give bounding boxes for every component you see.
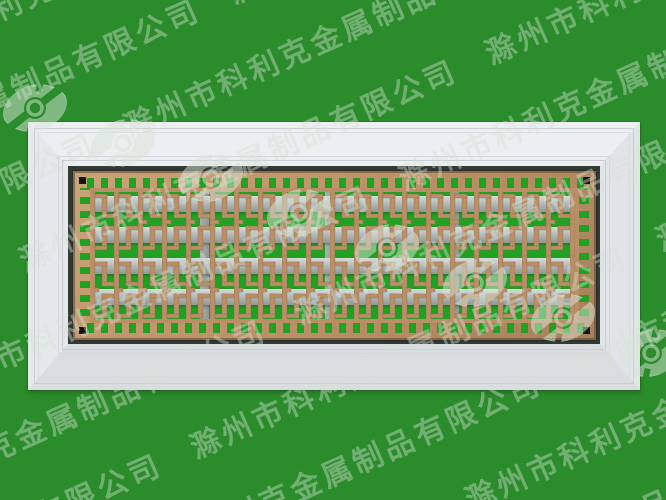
grille-border-holes-top [80, 178, 589, 188]
screw-hole [583, 177, 590, 184]
watermark-text-row: 滁州市科利克金属制品有限公司 滁州市科利克金属制品有限公司 滁州市科利克金属制品… [0, 399, 666, 500]
frame-opening [68, 166, 600, 344]
screw-hole [79, 327, 86, 334]
screw-hole [79, 177, 86, 184]
fretwork-pattern [90, 188, 579, 323]
grille-border-holes-bottom [80, 323, 589, 333]
grille-field [90, 188, 579, 323]
grille-border-holes-right [579, 188, 589, 323]
grille-panel [73, 171, 596, 340]
grille-border-holes-left [80, 188, 90, 323]
watermark-text-row: 滁州市科利克金属制品有限公司 滁州市科利克金属制品有限公司 滁州市科利克金属制品… [0, 0, 666, 106]
product-photo: 滁州市科利克金属制品有限公司 滁州市科利克金属制品有限公司 滁州市科利克金属制品… [0, 0, 666, 500]
screw-hole [583, 327, 590, 334]
